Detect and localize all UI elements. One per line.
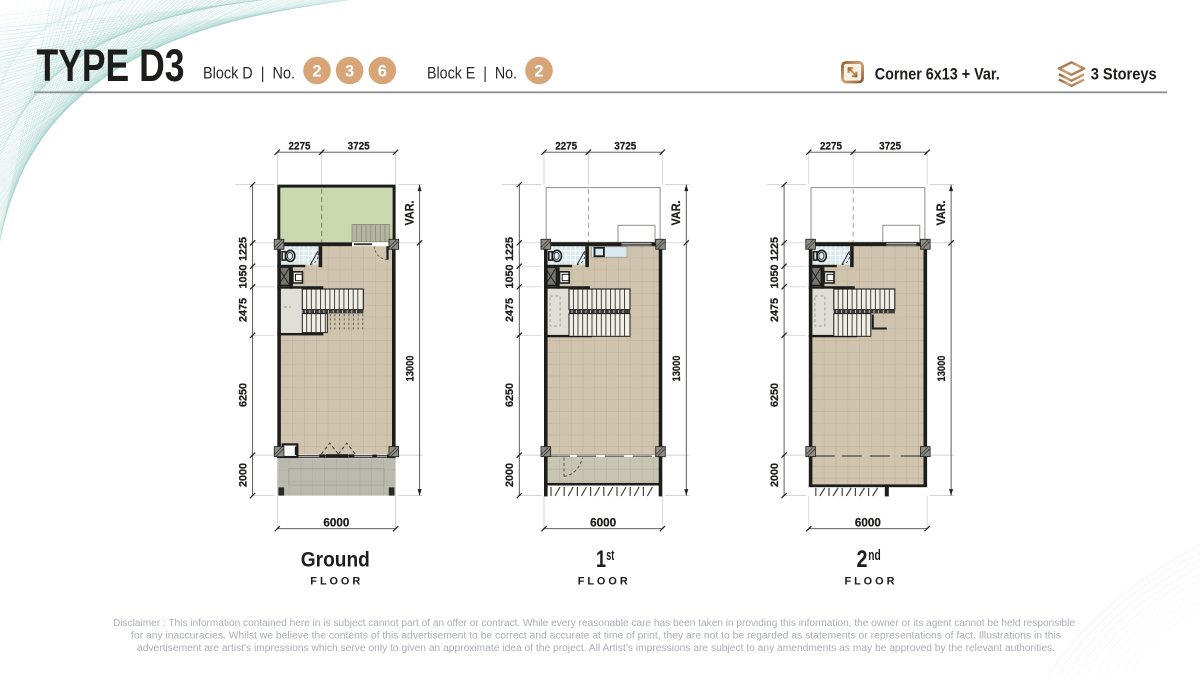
svg-text:2275: 2275 — [289, 140, 311, 152]
svg-text:Corner 6x13 + Var.: Corner 6x13 + Var. — [875, 65, 1000, 84]
svg-text:6000: 6000 — [323, 517, 349, 529]
svg-text:6: 6 — [378, 62, 387, 80]
svg-text:2: 2 — [534, 62, 543, 80]
svg-text:3725: 3725 — [879, 140, 901, 152]
svg-text:3725: 3725 — [348, 140, 370, 152]
svg-text:TYPE D3: TYPE D3 — [37, 40, 185, 91]
svg-text:F L O O R: F L O O R — [578, 576, 628, 588]
svg-text:3 Storeys: 3 Storeys — [1091, 65, 1157, 84]
svg-text:13000: 13000 — [405, 356, 417, 382]
svg-text:F L O O R: F L O O R — [310, 576, 360, 588]
svg-text:1050: 1050 — [769, 265, 781, 289]
svg-text:2000: 2000 — [237, 463, 249, 487]
svg-text:2275: 2275 — [555, 140, 577, 152]
svg-text:1050: 1050 — [504, 265, 516, 289]
svg-text:advertisement are artist's imp: advertisement are artist's impressions w… — [137, 643, 1055, 654]
svg-text:2475: 2475 — [504, 298, 516, 322]
svg-text:VAR.: VAR. — [671, 201, 683, 226]
svg-text:2000: 2000 — [769, 463, 781, 487]
svg-text:13000: 13000 — [936, 356, 948, 382]
svg-text:3: 3 — [345, 62, 354, 80]
svg-text:2475: 2475 — [769, 298, 781, 322]
svg-text:Block E | No.: Block E | No. — [427, 65, 517, 83]
svg-text:6000: 6000 — [855, 517, 881, 529]
svg-text:Disclaimer : This information: Disclaimer : This information contained … — [113, 618, 1075, 629]
svg-text:1: 1 — [596, 546, 606, 573]
svg-text:6250: 6250 — [237, 383, 249, 407]
svg-text:2475: 2475 — [237, 298, 249, 322]
svg-text:6250: 6250 — [769, 383, 781, 407]
svg-text:nd: nd — [868, 548, 881, 564]
svg-text:F L O O R: F L O O R — [845, 576, 895, 588]
svg-text:1225: 1225 — [237, 237, 249, 261]
svg-text:2: 2 — [312, 62, 321, 80]
svg-text:Block D | No.: Block D | No. — [203, 65, 295, 83]
svg-text:st: st — [606, 548, 614, 564]
svg-text:6250: 6250 — [504, 383, 516, 407]
svg-text:1225: 1225 — [769, 237, 781, 261]
svg-text:Ground: Ground — [301, 548, 370, 572]
svg-text:2000: 2000 — [504, 463, 516, 487]
svg-text:1050: 1050 — [237, 265, 249, 289]
svg-text:for any inaccuracies. Whilst w: for any inaccuracies. Whilst we believe … — [131, 630, 1061, 641]
svg-text:2: 2 — [857, 546, 868, 573]
svg-text:13000: 13000 — [671, 356, 683, 382]
svg-text:3725: 3725 — [614, 140, 636, 152]
svg-text:1225: 1225 — [504, 237, 516, 261]
svg-text:VAR.: VAR. — [405, 201, 417, 226]
svg-text:6000: 6000 — [590, 517, 616, 529]
svg-text:VAR.: VAR. — [936, 201, 948, 226]
svg-text:2275: 2275 — [820, 140, 842, 152]
